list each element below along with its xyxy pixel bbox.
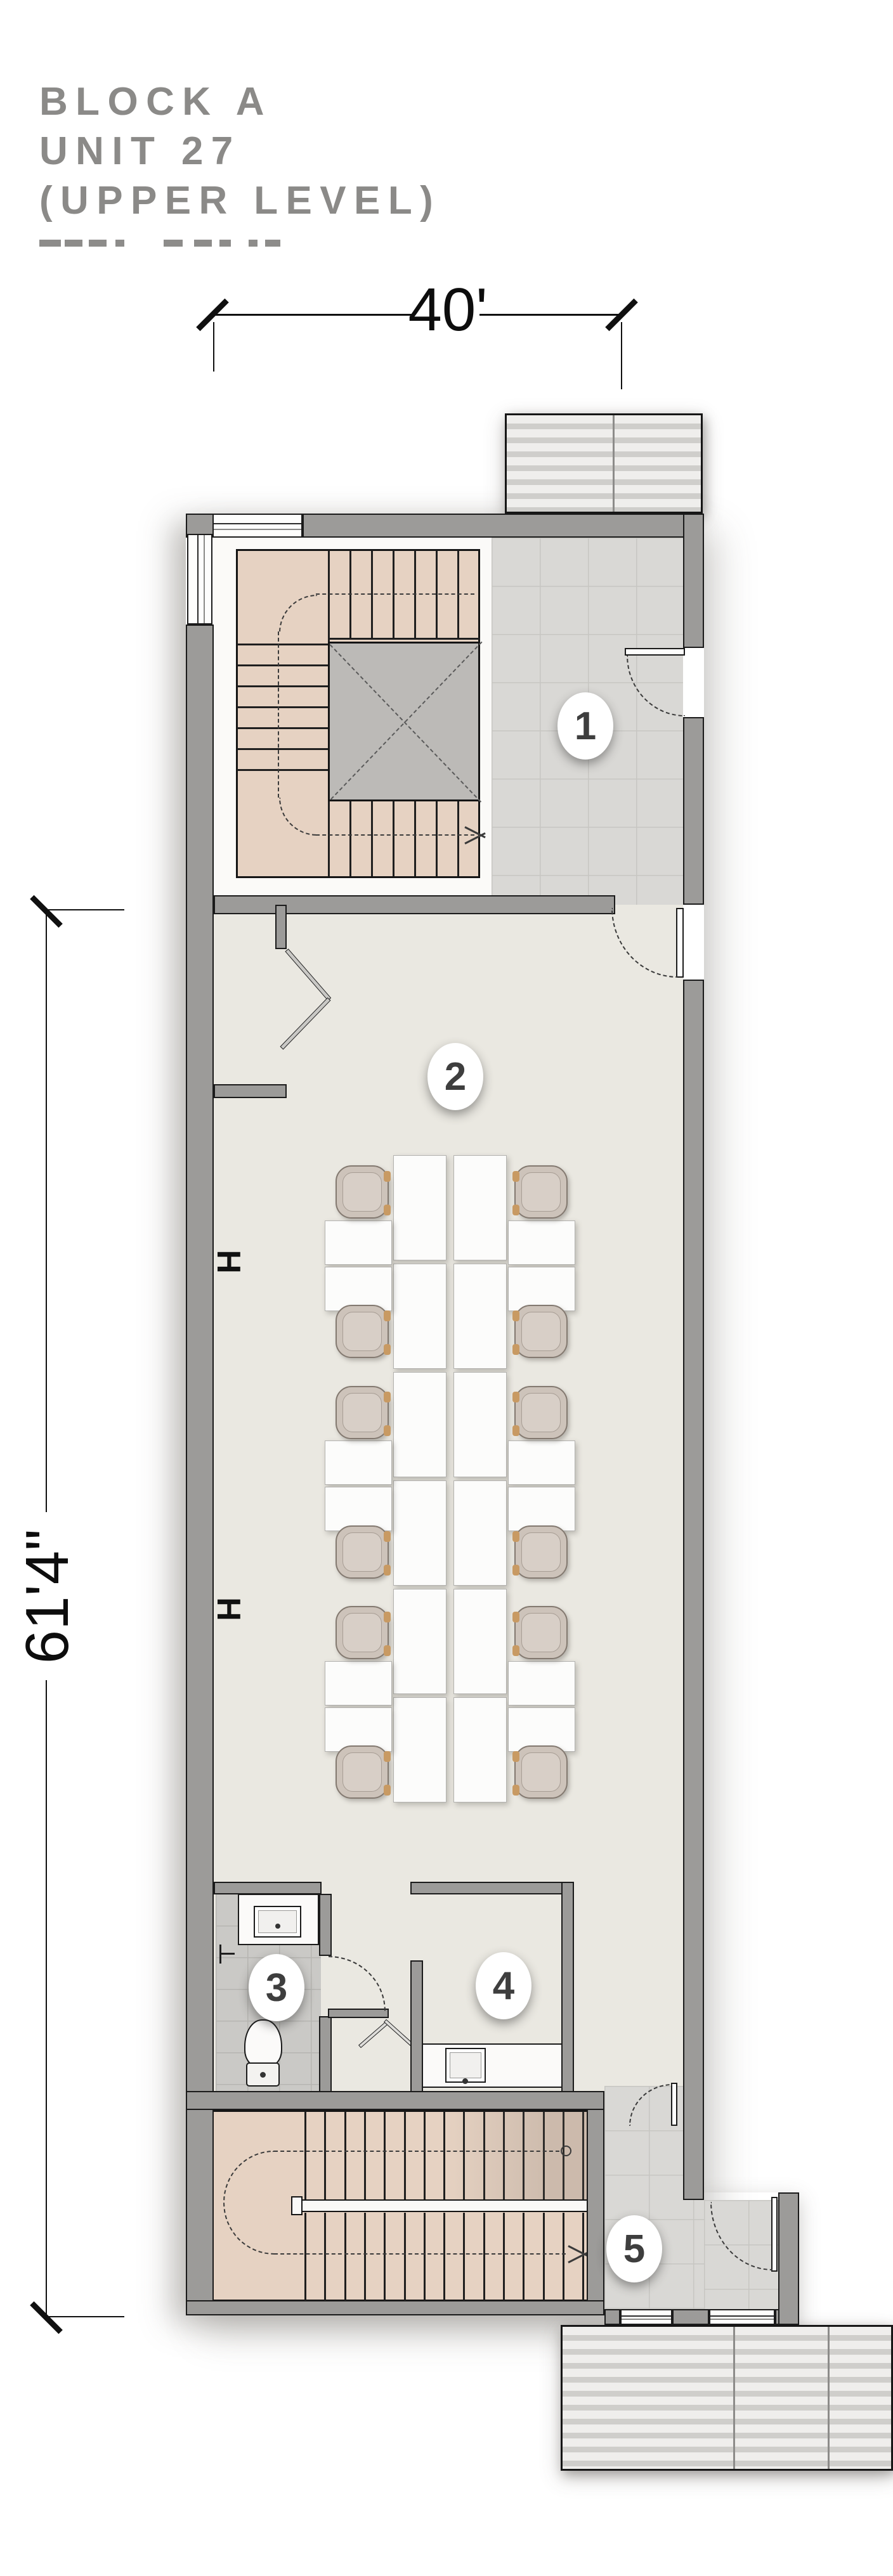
toilet-bowl [244, 2019, 282, 2068]
desk-spine [453, 1264, 507, 1369]
wall-right [683, 514, 704, 648]
stair-tread [457, 801, 459, 876]
kitchen-faucet [462, 2078, 468, 2084]
stair-tread-edge [328, 638, 480, 640]
wall-left [186, 514, 214, 536]
stair-rail [297, 2199, 603, 2212]
stair-tread [463, 2213, 465, 2300]
office-chair [514, 1606, 568, 1659]
desk-spine [393, 1264, 446, 1369]
desk-spine [453, 1372, 507, 1477]
wall-right [683, 980, 704, 2200]
wall-room3-right [319, 1894, 332, 1956]
dim-height-line [46, 1680, 47, 2318]
vanity-sink [254, 1906, 301, 1938]
stair-tread [237, 664, 330, 666]
stair-shade [444, 2112, 600, 2199]
stair-tread [414, 550, 416, 639]
stair-path [278, 631, 279, 798]
stair-tread [371, 550, 373, 639]
title-clipped-mark [39, 240, 61, 247]
office-chair [514, 1745, 568, 1799]
desk-spine [393, 1155, 446, 1260]
stair-tread [304, 2213, 306, 2300]
stair-tread [324, 2213, 326, 2300]
dim-height-line [46, 911, 47, 1512]
office-chair [514, 1305, 568, 1358]
dim-height-label: 61'4" [17, 1524, 78, 1669]
stair-path-start [561, 2146, 571, 2156]
title-unit: UNIT 27 [39, 127, 441, 176]
title-clipped-mark [65, 240, 82, 247]
room-badge-4: 4 [476, 1952, 531, 2019]
desk-return-left [325, 1220, 392, 1265]
desk-return-right [508, 1220, 575, 1265]
room-badge-2: 2 [427, 1043, 483, 1110]
stair-tread [304, 2111, 306, 2200]
toilet-flush [260, 2072, 266, 2078]
balcony-bottom-divider [828, 2327, 830, 2469]
stair-tread [237, 748, 330, 750]
stair-tread [328, 801, 330, 876]
wall-stub [214, 1084, 287, 1098]
title-level: (UPPER LEVEL) [39, 176, 441, 226]
stair-tread [414, 801, 416, 876]
desk-spine [393, 1697, 446, 1803]
title-clipped-mark [164, 240, 183, 247]
stair-tread [503, 2213, 505, 2300]
stair-tread [324, 2111, 326, 2200]
wall-bottom [604, 2309, 620, 2325]
desk-return-left [325, 1661, 392, 1705]
floor-plan: HH12345 [0, 0, 893, 2576]
stair-tread [349, 550, 351, 639]
kitchen-counter [422, 2043, 563, 2088]
desk-return-right [508, 1661, 575, 1705]
stair-tread [384, 2111, 386, 2200]
stair-tread [436, 801, 438, 876]
window-left [187, 534, 212, 625]
title-clipped-mark [194, 240, 212, 247]
office-chair [336, 1305, 389, 1358]
stair-tread [483, 2213, 485, 2300]
stair-path [274, 2253, 566, 2255]
room-badge-3: 3 [249, 1954, 304, 2021]
office-chair [514, 1165, 568, 1219]
wall-jog-right [778, 2192, 799, 2325]
desk-spine [453, 1480, 507, 1586]
title-clipped-mark [89, 240, 107, 247]
dim-width-label: 40' [386, 275, 510, 345]
room-badge-5: 5 [606, 2215, 662, 2282]
desk-spine [393, 1372, 446, 1477]
wall-fixture [219, 1953, 235, 1955]
balcony-top [505, 413, 703, 514]
stair-tread [424, 2111, 426, 2200]
stair-tread [237, 685, 330, 687]
desk-spine [453, 1697, 507, 1803]
window-bottom [709, 2309, 775, 2325]
dim-ext [48, 909, 124, 910]
office-chair [514, 1386, 568, 1439]
stair-tread [404, 2111, 406, 2200]
dim-ext [621, 322, 622, 389]
window-top [200, 514, 303, 538]
stair-tread [523, 2213, 525, 2300]
desk-return-left [325, 1440, 392, 1485]
stair-path [274, 2151, 559, 2152]
stair-tread [543, 2213, 545, 2300]
title-clipped-mark [265, 240, 280, 247]
door-leaf-room1 [625, 648, 685, 656]
stair-tread [344, 2111, 346, 2200]
stair-tread [237, 727, 330, 729]
stair-rail-end [291, 2196, 303, 2215]
stair-tread [237, 769, 330, 771]
desk-return-left [325, 1487, 392, 1531]
wall-right [683, 717, 704, 905]
desk-return-right [508, 1487, 575, 1531]
faucet-dot [275, 1924, 280, 1929]
stair-tread [404, 2213, 406, 2300]
balcony-top-divider [613, 415, 615, 512]
wall-room3-right [319, 2016, 332, 2094]
desk-spine [393, 1480, 446, 1586]
stair-tread [457, 550, 459, 639]
kitchen-sink [445, 2048, 486, 2083]
column-symbol: H [213, 1248, 244, 1276]
desk-spine [453, 1589, 507, 1694]
stair-tread [563, 2213, 564, 2300]
wall-top [303, 514, 704, 538]
stair-tread [436, 550, 438, 639]
stair-tread [364, 2111, 366, 2200]
office-chair [336, 1525, 389, 1579]
stair-tread [328, 550, 330, 639]
stair-tread [364, 2213, 366, 2300]
wall-left [186, 625, 214, 2315]
stair-tread [393, 550, 394, 639]
wall-stair-right [587, 2109, 604, 2301]
stair-tread [349, 801, 351, 876]
title-clipped-mark [249, 240, 257, 247]
stair-path [316, 834, 474, 836]
stair-tread [443, 2213, 445, 2300]
stair-tread [393, 801, 394, 876]
balcony-bottom-divider [733, 2327, 735, 2469]
balcony-bottom [561, 2325, 893, 2471]
stair-tread [384, 2213, 386, 2300]
stair-tread [237, 706, 330, 708]
title-clipped-mark [115, 240, 124, 247]
column-symbol: H [213, 1595, 244, 1623]
desk-spine [453, 1155, 507, 1260]
dim-ext [48, 2316, 124, 2317]
wall-room4-left [410, 1960, 423, 2094]
stair-tread [424, 2213, 426, 2300]
office-chair [336, 1386, 389, 1439]
wall-room4-right [561, 1882, 574, 2094]
room-badge-1: 1 [557, 692, 613, 760]
title-clipped-mark [219, 240, 231, 247]
stair-path [316, 593, 474, 595]
stair-tread [371, 801, 373, 876]
desk-spine [393, 1589, 446, 1694]
office-chair [336, 1165, 389, 1219]
office-chair [514, 1525, 568, 1579]
wall-room4-top [410, 1882, 574, 1894]
plan-title: BLOCK A UNIT 27 (UPPER LEVEL) [39, 77, 441, 226]
stair-tread [582, 2213, 584, 2300]
wall-divider [214, 895, 615, 914]
office-chair [336, 1606, 389, 1659]
desk-return-right [508, 1440, 575, 1485]
window-bottom [620, 2309, 672, 2325]
wall-bottom [672, 2309, 709, 2325]
stair-tread [237, 644, 330, 645]
wall-room3-top [214, 1882, 322, 1894]
dim-ext [213, 322, 214, 372]
wall-band-bottom [186, 2091, 604, 2110]
title-block: BLOCK A [39, 77, 441, 127]
dim-width-line [216, 314, 414, 316]
office-chair [336, 1745, 389, 1799]
stair-tread [344, 2213, 346, 2300]
wall-stub [275, 905, 287, 949]
wall-bottom [186, 2300, 604, 2315]
